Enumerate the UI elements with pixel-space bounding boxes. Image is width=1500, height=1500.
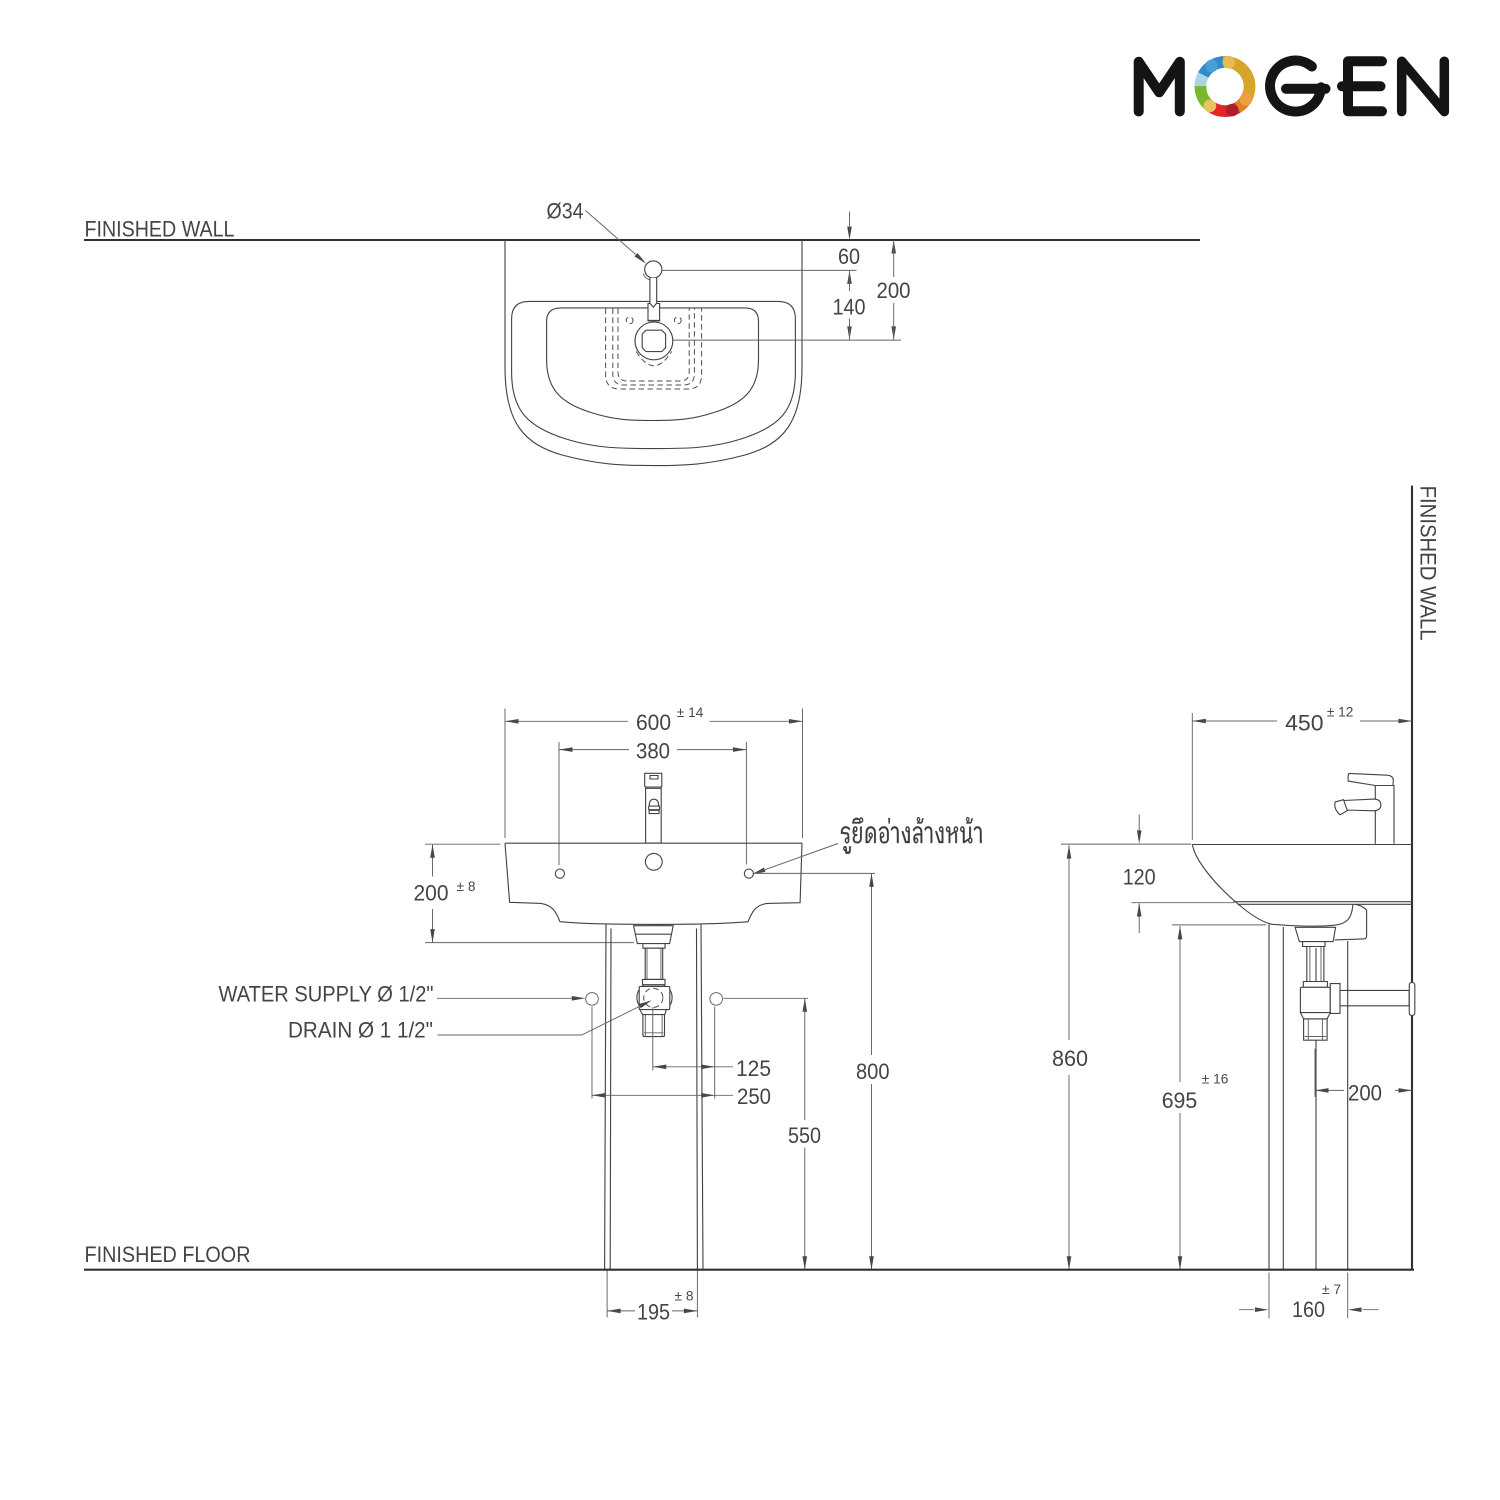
svg-text:860: 860 <box>1052 1046 1088 1071</box>
svg-text:200: 200 <box>414 881 449 906</box>
svg-text:FINISHED WALL: FINISHED WALL <box>85 217 235 242</box>
svg-text:195: 195 <box>637 1299 670 1324</box>
svg-text:140: 140 <box>833 295 866 320</box>
svg-text:± 7: ± 7 <box>1322 1281 1341 1297</box>
svg-text:60: 60 <box>838 244 860 269</box>
svg-text:380: 380 <box>636 739 670 764</box>
svg-text:800: 800 <box>856 1059 890 1084</box>
svg-text:695: 695 <box>1162 1088 1198 1113</box>
svg-text:125: 125 <box>736 1056 771 1081</box>
svg-text:250: 250 <box>737 1084 771 1109</box>
svg-text:WATER SUPPLY Ø 1/2": WATER SUPPLY Ø 1/2" <box>219 982 434 1007</box>
svg-text:DRAIN Ø 1 1/2": DRAIN Ø 1 1/2" <box>288 1018 433 1043</box>
svg-text:200: 200 <box>1348 1081 1382 1106</box>
svg-text:Ø34: Ø34 <box>547 199 584 224</box>
svg-text:± 16: ± 16 <box>1202 1071 1229 1087</box>
svg-text:± 8: ± 8 <box>457 878 476 894</box>
svg-text:± 8: ± 8 <box>675 1288 694 1304</box>
svg-text:600: 600 <box>636 710 671 735</box>
svg-text:± 14: ± 14 <box>677 704 704 720</box>
svg-text:± 12: ± 12 <box>1327 704 1354 720</box>
svg-text:160: 160 <box>1292 1297 1325 1322</box>
svg-text:200: 200 <box>877 278 911 303</box>
svg-text:FINISHED FLOOR: FINISHED FLOOR <box>85 1242 251 1267</box>
svg-text:550: 550 <box>788 1123 821 1148</box>
svg-text:120: 120 <box>1123 864 1156 889</box>
svg-text:450: 450 <box>1285 711 1324 736</box>
svg-text:FINISHED WALL: FINISHED WALL <box>1416 486 1441 641</box>
